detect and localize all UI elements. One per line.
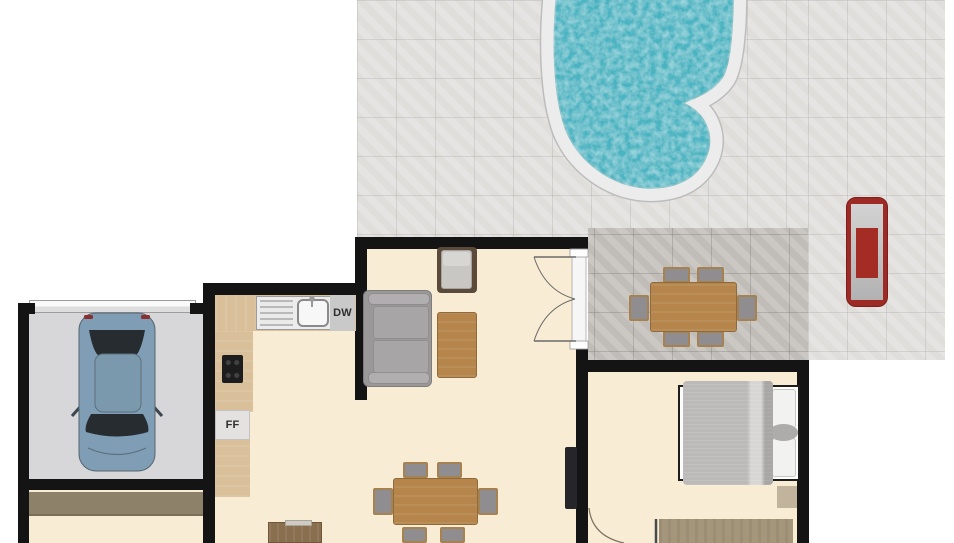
floor-plan-canvas: DW FF — [0, 0, 954, 543]
car-taillight — [141, 315, 150, 319]
door-swing-arc — [534, 299, 575, 341]
french-doors[interactable] — [534, 249, 588, 349]
car-rear-window — [89, 330, 145, 356]
bedroom-door[interactable] — [589, 508, 656, 543]
car[interactable] — [72, 313, 162, 471]
faucet-icon — [309, 296, 315, 307]
swimming-pool[interactable] — [554, 0, 733, 188]
french-doors-jamb — [570, 341, 588, 349]
door-swing-arc — [589, 508, 624, 543]
car-taillight — [84, 315, 93, 319]
french-doors-jamb — [570, 249, 588, 257]
vector-layer — [0, 0, 954, 543]
car-windshield — [86, 414, 149, 437]
door-swing-arc — [534, 257, 575, 299]
car-roof — [95, 354, 141, 412]
